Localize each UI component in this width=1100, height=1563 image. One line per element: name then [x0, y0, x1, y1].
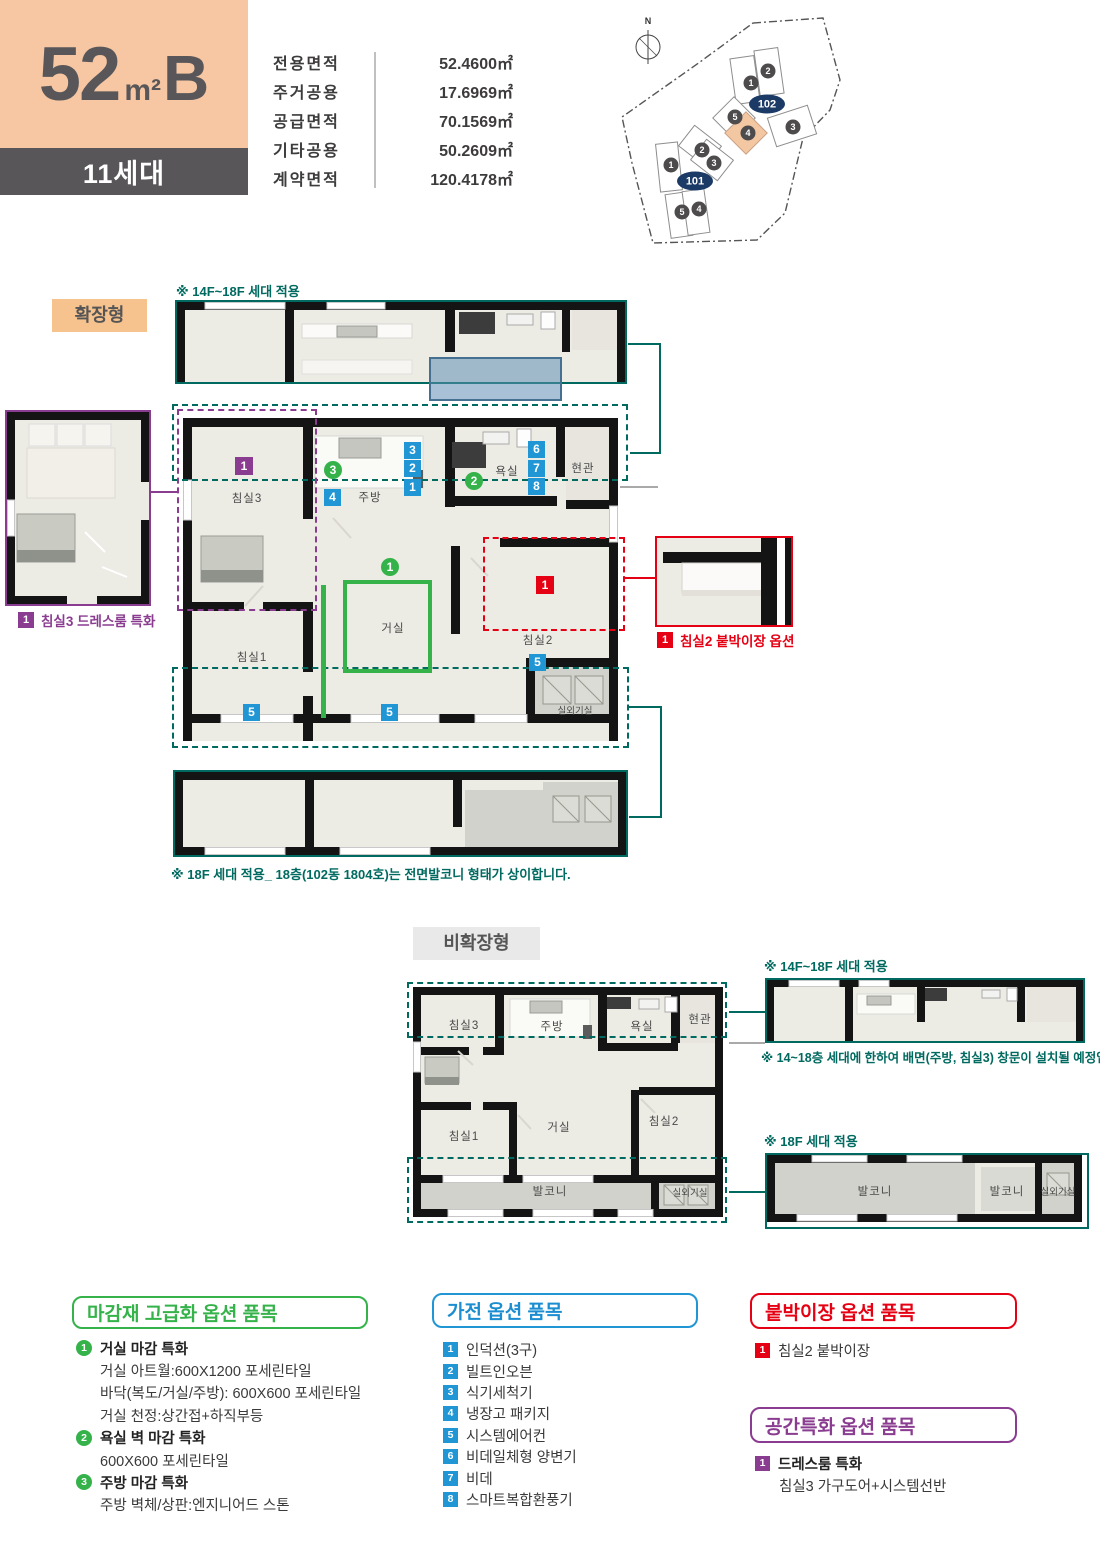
list-item: 8스마트복합환풍기	[443, 1489, 723, 1510]
windows	[789, 981, 889, 987]
list-item: 7비데	[443, 1467, 723, 1488]
nonexpanded-type-label: 비확장형	[413, 927, 540, 960]
option-badge-green-3: 3	[324, 461, 342, 479]
list-item: 1 드레스룸 특화	[755, 1452, 1035, 1475]
overlay-closet-bed2	[483, 537, 625, 631]
connector-teal	[628, 343, 661, 345]
item-label: 빌트인오븐	[466, 1361, 533, 1382]
svg-text:101: 101	[686, 176, 704, 188]
list-subitem: 거실 천정:상간접+하직부등	[100, 1404, 426, 1426]
table-row: 주거공용 17.6969㎡	[273, 76, 513, 105]
item-badge: 2	[443, 1364, 458, 1379]
svg-text:5: 5	[679, 207, 684, 217]
callout-bed2-caption: 1 침실2 붙박이장 옵션	[657, 630, 794, 650]
unit-letter: B	[163, 41, 209, 115]
table-divider	[374, 52, 376, 188]
room-label-balcony-l: 발코니	[858, 1183, 893, 1199]
nonexpanded-strip-14-18-drawing	[767, 980, 1083, 1041]
room-label-balcony-r: 발코니	[990, 1183, 1025, 1199]
space-options-box: 공간특화 옵션 품목	[750, 1407, 1017, 1443]
option-badge-purple-1: 1	[235, 457, 253, 475]
item-label: 시스템에어컨	[466, 1425, 546, 1446]
item-badge: 2	[76, 1430, 92, 1446]
area-label: 계약면적	[273, 166, 369, 190]
overlay-ne-top	[407, 982, 727, 1038]
list-item: 6비데일체형 양변기	[443, 1446, 723, 1467]
connector-teal	[629, 706, 662, 708]
nonexpanded-main-plan: 침실3 주방 욕실 현관 침실1 거실 침실2 발코니 실외기실	[407, 982, 731, 1227]
option-badge-blue-3: 3	[404, 442, 421, 459]
item-badge: 6	[443, 1449, 458, 1464]
option-badge-red-1: 1	[536, 576, 554, 594]
option-badge-blue-7: 7	[528, 460, 545, 477]
callout-bed2-closet	[655, 536, 793, 627]
connector-teal	[729, 1011, 765, 1013]
item-label: 비데	[466, 1468, 493, 1489]
room-label-bed2: 침실2	[649, 1113, 680, 1129]
area-label: 주거공용	[273, 79, 369, 103]
item-badge: 1	[443, 1342, 458, 1357]
appliance-options-list: 1인덕션(3구) 2빌트인오븐 3식기세척기 4냉장고 패키지 5시스템에어컨 …	[443, 1339, 723, 1510]
compass-icon: N	[636, 16, 660, 64]
item-label: 침실2 붙박이장	[778, 1340, 870, 1361]
svg-text:102: 102	[758, 99, 776, 111]
item-badge: 3	[76, 1474, 92, 1490]
unit-number: 52	[39, 31, 120, 118]
room-label-bed2: 침실2	[523, 632, 554, 648]
list-item: 2 욕실 벽 마감 특화	[76, 1426, 426, 1449]
area-label: 전용면적	[273, 50, 369, 74]
bath-highlight-overlay	[429, 357, 562, 401]
space-options-title: 공간특화 옵션 품목	[765, 1412, 915, 1439]
room-label-ac: 실외기실	[1041, 1184, 1076, 1198]
svg-text:2: 2	[699, 145, 704, 155]
item-label: 인덕션(3구)	[466, 1339, 537, 1360]
site-plan: N 1 2 5 4 3 1 2 3 5 4 102 10	[615, 5, 1085, 255]
room-label-bed1: 침실1	[449, 1128, 480, 1144]
area-label: 기타공용	[273, 137, 369, 161]
connector-teal	[630, 452, 661, 454]
svg-text:1: 1	[748, 78, 753, 88]
list-item: 4냉장고 패키지	[443, 1403, 723, 1424]
area-value: 70.1569㎡	[369, 108, 513, 132]
list-item: 2빌트인오븐	[443, 1360, 723, 1381]
area-label: 공급면적	[273, 108, 369, 132]
expanded-type-label: 확장형	[52, 299, 147, 332]
expanded-footnote: ※ 18F 세대 적용_ 18층(102동 1804호)는 전면발코니 형태가 …	[171, 864, 571, 883]
overlay-sysaircon-bottom	[172, 667, 629, 748]
space-options-list: 1 드레스룸 특화 침실3 가구도어+시스템선반	[755, 1452, 1035, 1497]
list-subitem: 침실3 가구도어+시스템선반	[779, 1475, 1035, 1497]
svg-text:5: 5	[732, 112, 737, 122]
svg-text:3: 3	[790, 122, 795, 132]
item-badge: 1	[755, 1456, 770, 1471]
callout-bed3-drawing	[7, 412, 149, 604]
item-badge: 7	[443, 1471, 458, 1486]
item-badge: 1	[76, 1340, 92, 1356]
table-row: 기타공용 50.2609㎡	[273, 134, 513, 163]
closet-options-box: 붙박이장 옵션 품목	[750, 1293, 1017, 1329]
appliance-options-title: 가전 옵션 품목	[447, 1297, 562, 1324]
caption-badge: 1	[18, 612, 34, 628]
list-item: 1인덕션(3구)	[443, 1339, 723, 1360]
list-item: 5시스템에어컨	[443, 1425, 723, 1446]
nonexpanded-strip-14-18	[765, 978, 1085, 1043]
brochure-page: 52 m² B 11세대 전용면적 52.4600㎡ 주거공용 17.6969㎡…	[0, 0, 1100, 1563]
area-value: 120.4178㎡	[369, 166, 513, 190]
unit-unit: m²	[124, 74, 161, 108]
callout-bed3-caption: 1 침실3 드레스룸 특화	[18, 610, 155, 630]
item-badge: 5	[443, 1428, 458, 1443]
unit-type-box: 52 m² B	[0, 0, 248, 148]
item-label: 식기세척기	[466, 1382, 533, 1403]
connector-red	[625, 577, 655, 579]
connector-teal	[659, 343, 661, 454]
item-title: 주방 마감 특화	[100, 1472, 188, 1493]
list-subitem: 바닥(복도/거실/주방): 600X600 포세린타일	[100, 1382, 426, 1404]
nonexpanded-note-14-18: ※ 14F~18F 세대 적용	[764, 956, 888, 975]
room-label-living: 거실	[547, 1119, 570, 1135]
nonexpanded-strip-18f: 발코니 발코니 실외기실	[765, 1153, 1089, 1229]
caption-text: 침실2 붙박이장 옵션	[680, 630, 794, 650]
connector-teal	[629, 816, 662, 818]
item-badge: 8	[443, 1492, 458, 1507]
overlay-ne-bottom	[407, 1157, 727, 1223]
item-title: 욕실 벽 마감 특화	[100, 1427, 205, 1448]
item-badge: 4	[443, 1406, 458, 1421]
option-badge-blue-4: 4	[324, 489, 341, 506]
list-item: 1 침실2 붙박이장	[755, 1340, 1035, 1361]
item-title: 드레스룸 특화	[778, 1453, 862, 1474]
item-label: 스마트복합환풍기	[466, 1489, 573, 1510]
connector-purple	[151, 491, 177, 493]
area-value: 17.6969㎡	[369, 79, 513, 103]
area-value: 52.4600㎡	[369, 50, 513, 74]
households-label: 11세대	[83, 152, 165, 191]
overlay-dressroom	[177, 409, 317, 611]
option-badge-blue-5c: 5	[381, 704, 398, 721]
option-badge-green-1: 1	[381, 558, 399, 576]
item-badge: 3	[443, 1385, 458, 1400]
svg-text:N: N	[645, 16, 652, 26]
connector-gray	[620, 486, 658, 488]
list-item: 3 주방 마감 특화	[76, 1471, 426, 1494]
area-table: 전용면적 52.4600㎡ 주거공용 17.6969㎡ 공급면적 70.1569…	[273, 47, 513, 192]
list-subitem: 600X600 포세린타일	[100, 1449, 426, 1471]
list-item: 1 거실 마감 특화	[76, 1337, 426, 1360]
area-value: 50.2609㎡	[369, 137, 513, 161]
finish-options-box: 마감재 고급화 옵션 품목	[72, 1296, 368, 1329]
window	[8, 500, 15, 536]
svg-text:2: 2	[765, 66, 770, 76]
item-badge: 1	[755, 1343, 770, 1358]
room-label-kitchen: 주방	[358, 489, 381, 505]
finish-options-title: 마감재 고급화 옵션 품목	[87, 1299, 278, 1326]
closet-options-title: 붙박이장 옵션 품목	[765, 1298, 915, 1325]
overlay-living-artwall	[343, 580, 432, 673]
option-badge-blue-6: 6	[528, 441, 545, 458]
list-item: 3식기세척기	[443, 1382, 723, 1403]
finish-options-list: 1 거실 마감 특화 거실 아트월:600X1200 포세린타일 바닥(복도/거…	[76, 1337, 426, 1516]
expanded-note-14-18: ※ 14F~18F 세대 적용	[176, 281, 300, 300]
option-badge-blue-2: 2	[404, 460, 421, 477]
option-badge-blue-1: 1	[404, 479, 421, 496]
item-label: 비데일체형 양변기	[466, 1446, 577, 1467]
caption-badge: 1	[657, 632, 673, 648]
item-title: 거실 마감 특화	[100, 1338, 188, 1359]
nonexpanded-strip-18f-drawing	[767, 1155, 1082, 1222]
nonexpanded-window-note: ※ 14~18층 세대에 한하여 배면(주방, 침실3) 창문이 설치될 예정입…	[761, 1047, 1100, 1066]
nonexpanded-note-18f: ※ 18F 세대 적용	[764, 1131, 858, 1150]
table-row: 전용면적 52.4600㎡	[273, 47, 513, 76]
room-label-bed1: 침실1	[237, 649, 268, 665]
appliance-options-box: 가전 옵션 품목	[432, 1293, 698, 1328]
callout-bed2-drawing	[657, 538, 791, 625]
option-badge-blue-5a: 5	[529, 654, 546, 671]
option-badge-green-2: 2	[465, 472, 483, 490]
households-badge: 11세대	[0, 148, 248, 195]
option-badge-blue-8: 8	[528, 478, 545, 495]
expanded-strip-18f-drawing	[175, 772, 626, 855]
table-row: 계약면적 120.4178㎡	[273, 163, 513, 192]
list-subitem: 거실 아트월:600X1200 포세린타일	[100, 1360, 426, 1382]
svg-text:4: 4	[696, 204, 701, 214]
svg-text:3: 3	[711, 158, 716, 168]
list-subitem: 주방 벽체/상판:엔지니어드 스톤	[100, 1494, 426, 1516]
connector-teal	[729, 1191, 765, 1193]
svg-text:4: 4	[745, 128, 750, 138]
item-label: 냉장고 패키지	[466, 1403, 550, 1424]
connector-teal	[660, 706, 662, 818]
option-badge-blue-5b: 5	[243, 704, 260, 721]
table-row: 공급면적 70.1569㎡	[273, 105, 513, 134]
expanded-strip-18f	[173, 770, 628, 857]
overlay-living-line	[321, 585, 326, 718]
svg-text:1: 1	[668, 160, 673, 170]
closet-options-list: 1 침실2 붙박이장	[755, 1340, 1035, 1361]
connector-gray	[729, 1042, 765, 1044]
callout-bed3-dressroom	[5, 410, 151, 606]
caption-text: 침실3 드레스룸 특화	[41, 610, 155, 630]
